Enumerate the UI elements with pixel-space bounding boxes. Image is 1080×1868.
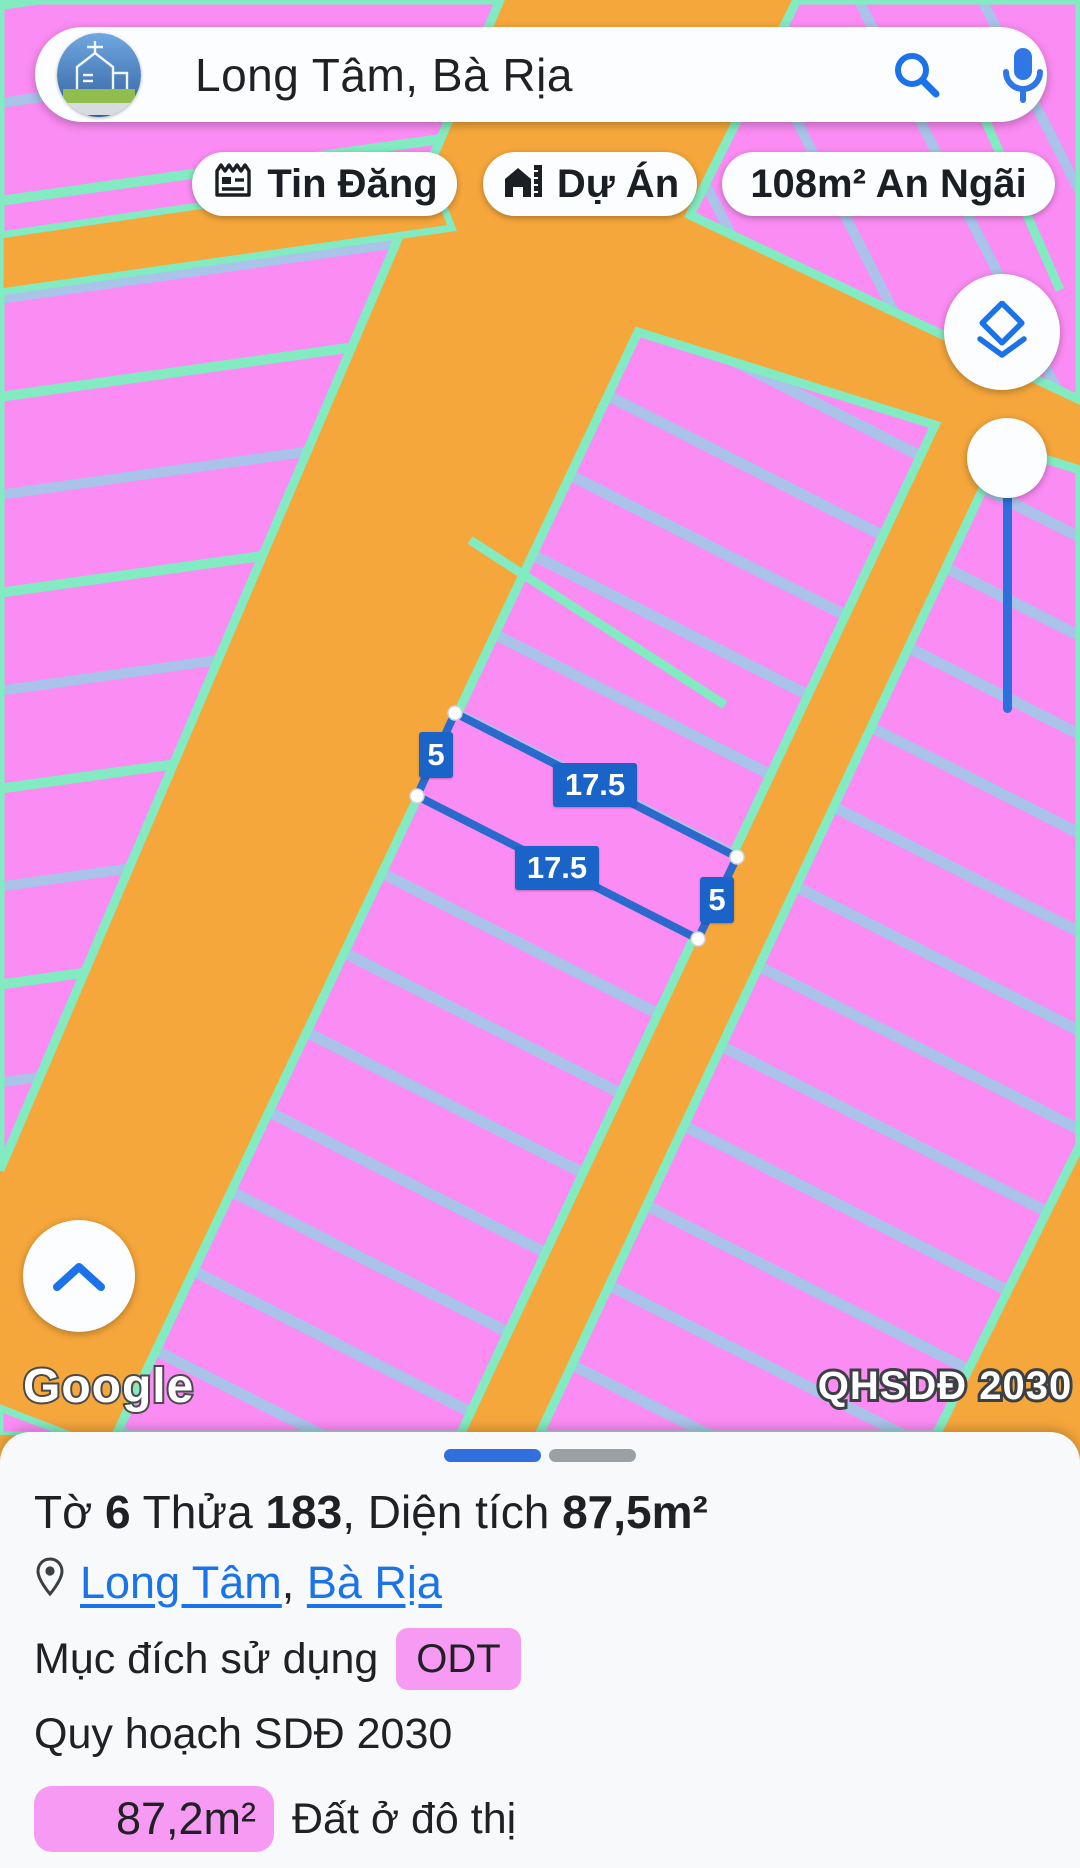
- chip-projects[interactable]: Dự Án: [483, 152, 697, 216]
- chevron-up-icon: [51, 1259, 107, 1293]
- measurement-label-right-width: 5: [700, 877, 734, 923]
- location-pin-icon: [34, 1556, 66, 1610]
- zoned-area-row: 87,2m² Đất ở đô thị: [34, 1786, 1046, 1852]
- microphone-icon[interactable]: [988, 27, 1058, 122]
- purpose-label: Mục đích sử dụng: [34, 1633, 378, 1685]
- search-query-text[interactable]: Long Tâm, Bà Rịa: [195, 27, 573, 122]
- parcel-vertex-dot[interactable]: [410, 789, 424, 803]
- location-row: Long Tâm, Bà Rịa: [34, 1556, 1046, 1610]
- chip-area-result[interactable]: 108m² An Ngãi: [722, 152, 1055, 216]
- search-bar[interactable]: Long Tâm, Bà Rịa: [35, 27, 1047, 122]
- layers-icon: [971, 301, 1033, 363]
- measurement-label-left-width: 5: [419, 732, 453, 778]
- page-indicator-inactive[interactable]: [549, 1449, 636, 1462]
- zoned-area-badge: 87,2m²: [34, 1786, 274, 1852]
- search-icon[interactable]: [882, 27, 952, 122]
- parcel-vertex-dot[interactable]: [730, 850, 744, 864]
- page-indicator-active[interactable]: [444, 1449, 541, 1462]
- zoom-slider-handle[interactable]: [967, 418, 1047, 498]
- newspaper-icon: [211, 157, 255, 211]
- chip-area-label: 108m² An Ngãi: [750, 162, 1026, 207]
- city-link[interactable]: Bà Rịa: [307, 1557, 442, 1608]
- measurement-label-bottom-length: 17.5: [515, 846, 599, 890]
- collapse-up-button[interactable]: [23, 1220, 135, 1332]
- parcel-info-panel[interactable]: Tờ 6 Thửa 183, Diện tích 87,5m² Long Tâm…: [0, 1432, 1080, 1868]
- plan-year-watermark: QHSDĐ 2030: [818, 1364, 1073, 1408]
- zoned-area-label: Đất ở đô thị: [292, 1793, 516, 1845]
- parcel-vertex-dot[interactable]: [691, 932, 705, 946]
- page-indicator[interactable]: [34, 1448, 1046, 1462]
- plan-row: Quy hoạch SDĐ 2030: [34, 1708, 1046, 1760]
- chip-listings-label: Tin Đăng: [267, 162, 437, 207]
- measurement-label-top-length: 17.5: [553, 763, 637, 807]
- chip-listings[interactable]: Tin Đăng: [192, 152, 457, 216]
- house-ruler-icon: [501, 157, 545, 211]
- purpose-badge: ODT: [396, 1628, 520, 1690]
- purpose-row: Mục đích sử dụng ODT: [34, 1628, 1046, 1690]
- google-watermark: Google: [23, 1360, 194, 1413]
- app-logo-avatar[interactable]: [57, 33, 141, 117]
- layers-button[interactable]: [944, 274, 1060, 390]
- ward-link[interactable]: Long Tâm: [80, 1557, 282, 1608]
- plan-label: Quy hoạch SDĐ 2030: [34, 1708, 452, 1760]
- parcel-vertex-dot[interactable]: [448, 706, 462, 720]
- parcel-title: Tờ 6 Thửa 183, Diện tích 87,5m²: [34, 1484, 1046, 1540]
- location-separator: ,: [282, 1557, 307, 1608]
- zoom-slider-track[interactable]: [1003, 478, 1012, 713]
- chip-projects-label: Dự Án: [557, 162, 679, 207]
